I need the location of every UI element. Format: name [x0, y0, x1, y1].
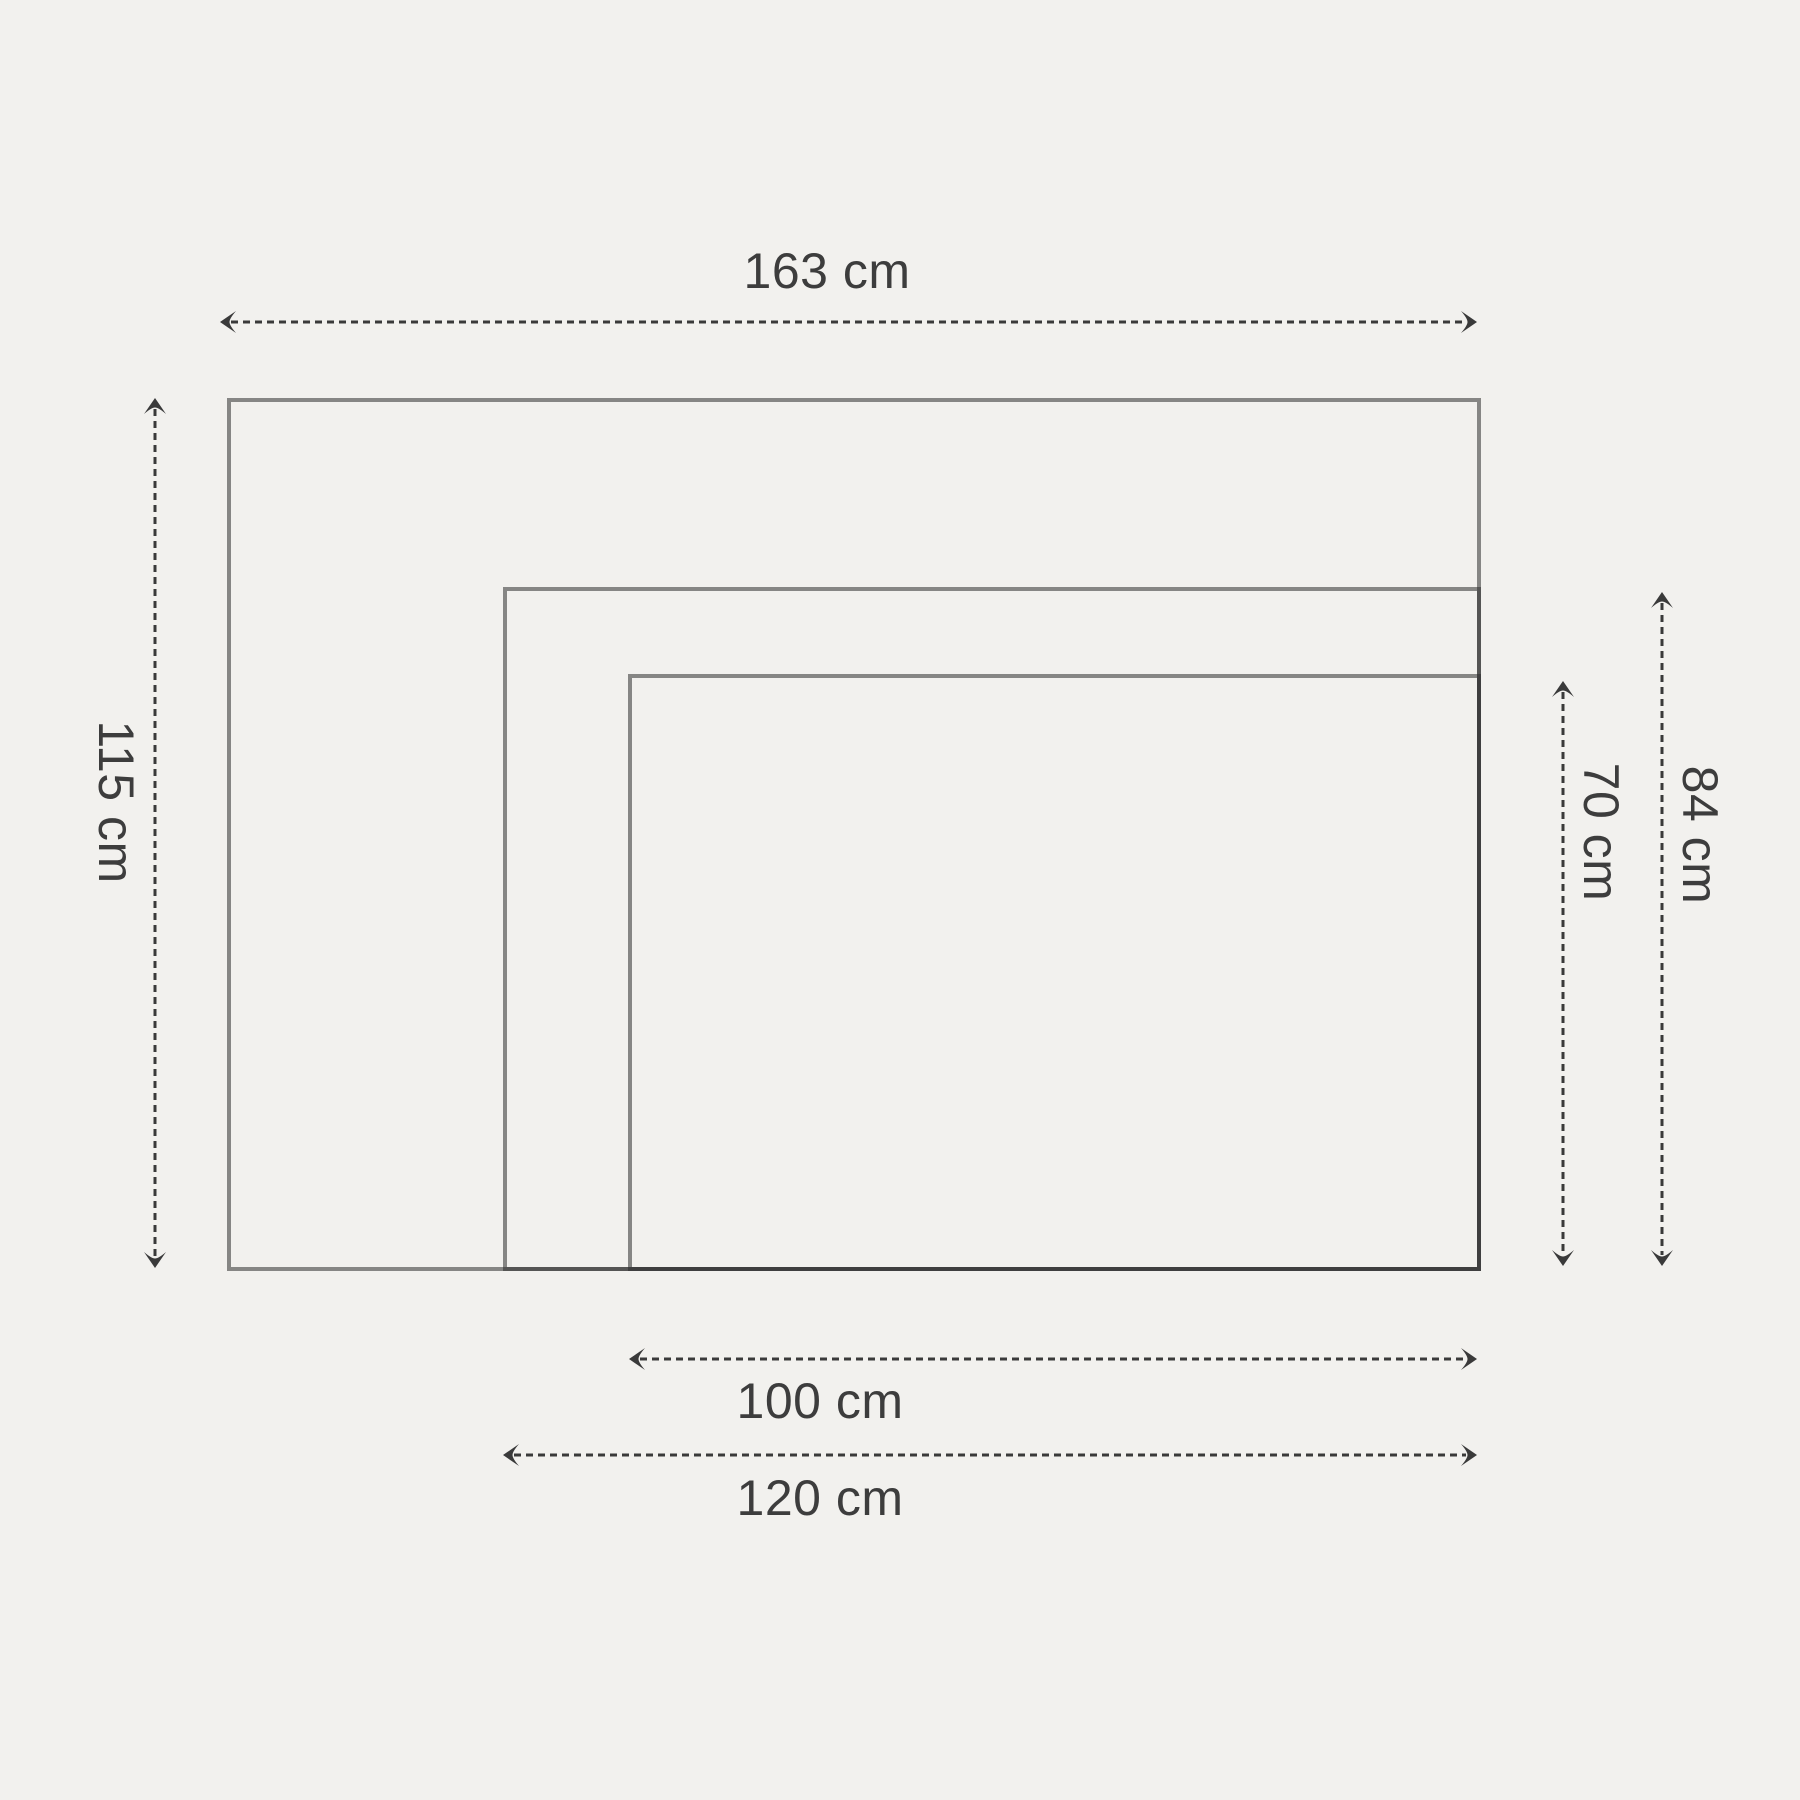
inner-height-label: 70 cm: [1576, 763, 1626, 902]
outer-height-arrow: [144, 398, 166, 1268]
outer-height-label: 115 cm: [91, 720, 141, 883]
inner-width-arrow: [629, 1348, 1477, 1370]
outer-width-arrow: [220, 311, 1477, 333]
outer-rectangle: [229, 400, 1479, 1269]
arrowhead-right-icon: [1461, 1348, 1477, 1370]
middle-height-arrow: [1651, 592, 1673, 1266]
inner-width-label: 100 cm: [737, 1376, 904, 1426]
arrowhead-down-icon: [1552, 1250, 1574, 1266]
dimension-diagram: 163 cm 115 cm 70 cm 84 cm 100 cm 120 cm: [0, 0, 1800, 1800]
middle-rectangle: [505, 589, 1479, 1269]
middle-width-arrow: [503, 1444, 1477, 1466]
inner-rectangle: [630, 676, 1479, 1269]
middle-height-label: 84 cm: [1675, 766, 1725, 905]
inner-height-arrow: [1552, 681, 1574, 1266]
arrowhead-right-icon: [1461, 311, 1477, 333]
outer-width-label: 163 cm: [744, 246, 911, 296]
middle-width-label: 120 cm: [737, 1473, 904, 1523]
